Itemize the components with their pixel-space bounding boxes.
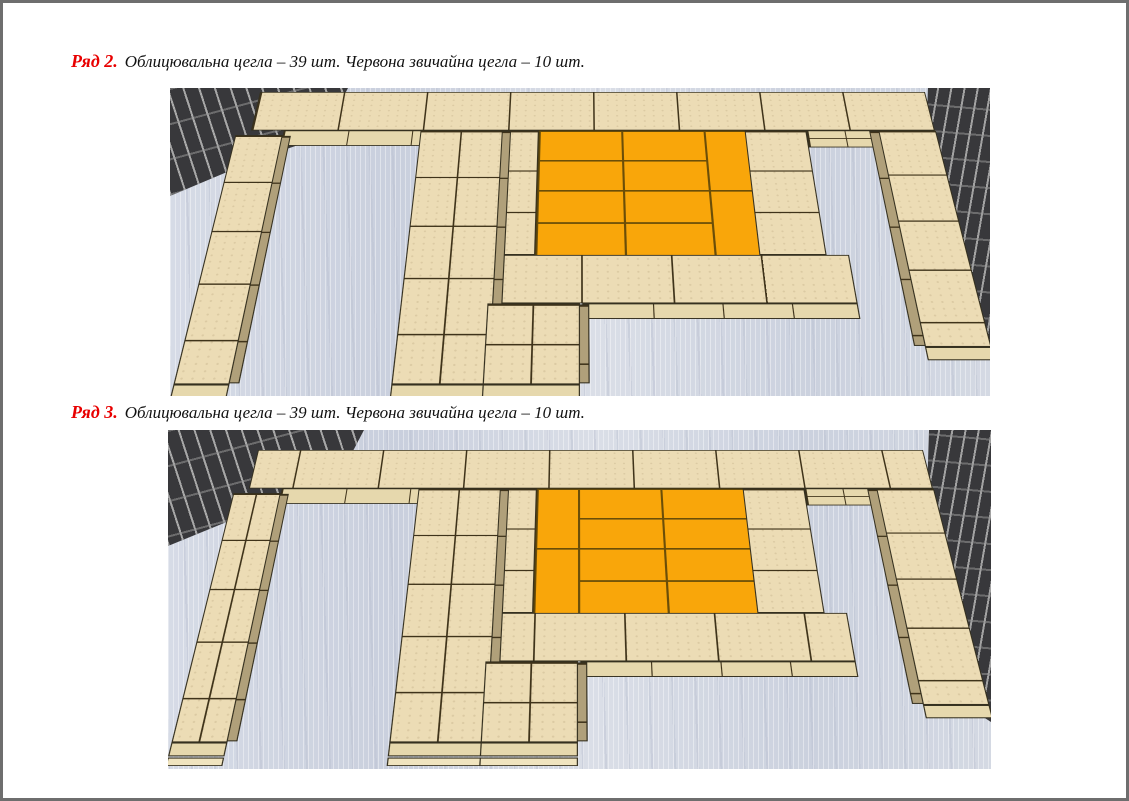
row-2-label: Ряд 2.	[71, 51, 118, 71]
lower-course-ledge-front	[580, 661, 858, 677]
red-brick	[625, 223, 716, 256]
facing-brick-back-band	[249, 450, 933, 488]
red-brick	[623, 160, 710, 190]
red-brick	[537, 191, 625, 223]
red-brick-panel	[533, 488, 757, 612]
pillar-front-step	[387, 758, 486, 767]
red-brick	[536, 489, 579, 549]
red-brick	[536, 223, 626, 256]
brick-course-3d-render	[168, 430, 991, 769]
pillar-front-step	[479, 758, 578, 767]
red-brick	[539, 131, 623, 160]
red-brick	[579, 549, 667, 581]
pillar-side-face	[577, 662, 588, 741]
pillar-front-face	[168, 742, 227, 756]
lower-course-ledge-left	[278, 488, 436, 503]
pillar-front-step	[168, 758, 224, 767]
pillar-side-face	[226, 494, 288, 742]
row-2-heading: Ряд 2.Облицювальна цегла – 39 шт. Червон…	[71, 51, 585, 72]
red-brick	[661, 489, 747, 518]
pillar-front-face	[170, 384, 229, 396]
pillar-side-face	[579, 304, 590, 383]
red-brick-panel	[535, 130, 759, 254]
firebox-surround-front	[487, 255, 857, 304]
lower-course-ledge-left	[280, 130, 438, 145]
red-brick	[624, 191, 713, 223]
row-3-label: Ряд 3.	[71, 402, 118, 422]
column-front-face	[925, 347, 990, 360]
red-brick	[579, 518, 665, 548]
facing-brick-pillar-center	[483, 303, 580, 384]
red-brick	[663, 518, 751, 548]
red-brick	[579, 581, 669, 614]
firebox-surround-right	[743, 488, 825, 612]
facing-brick-back-band	[251, 92, 935, 130]
column-side-face	[867, 489, 924, 704]
firebox-surround-right	[745, 130, 827, 254]
row-3-figure	[168, 430, 991, 769]
pillar-front-face	[390, 384, 489, 396]
column-side-face	[869, 131, 926, 346]
pillar-front-face	[482, 384, 580, 396]
pillar-side-face	[228, 136, 290, 384]
document-page: Ряд 2.Облицювальна цегла – 39 шт. Червон…	[0, 0, 1129, 801]
pillar-front-face	[480, 742, 578, 756]
column-front-face	[923, 705, 991, 718]
firebox-surround-front	[485, 613, 855, 662]
facing-brick-column-right	[878, 130, 990, 346]
row-3-heading: Ряд 3.Облицювальна цегла – 39 шт. Червон…	[71, 402, 585, 423]
row-2-description: Облицювальна цегла – 39 шт. Червона звич…	[125, 52, 585, 71]
facing-brick-pillar-left	[171, 493, 280, 742]
red-brick	[579, 489, 663, 518]
row-2-figure	[170, 88, 990, 396]
brick-course-plan	[170, 92, 990, 391]
facing-brick-pillar-center	[481, 661, 578, 742]
red-brick	[538, 160, 624, 190]
red-brick	[667, 581, 759, 614]
brick-course-plan	[168, 450, 991, 749]
pillar-front-face	[388, 742, 487, 756]
red-brick	[665, 549, 755, 581]
red-brick	[534, 549, 579, 614]
lower-course-ledge-front	[582, 303, 860, 319]
row-3-description: Облицювальна цегла – 39 шт. Червона звич…	[125, 403, 585, 422]
brick-course-3d-render	[170, 88, 990, 396]
red-brick	[622, 131, 707, 160]
facing-brick-column-right	[876, 488, 989, 704]
facing-brick-pillar-left	[173, 135, 282, 384]
